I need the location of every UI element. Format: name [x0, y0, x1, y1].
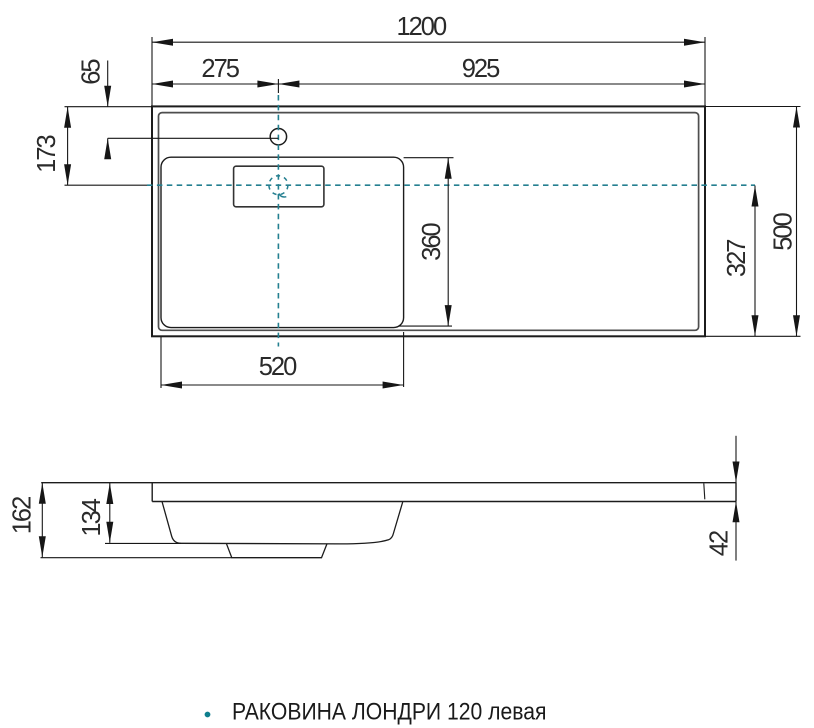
svg-text:520: 520	[259, 353, 297, 381]
svg-text:327: 327	[723, 240, 751, 277]
svg-text:42: 42	[706, 531, 734, 556]
svg-text:360: 360	[418, 223, 446, 261]
svg-text:500: 500	[769, 212, 797, 250]
svg-text:275: 275	[201, 55, 239, 83]
svg-text:1200: 1200	[396, 13, 447, 41]
svg-text:РАКОВИНА ЛОНДРИ 120 левая: РАКОВИНА ЛОНДРИ 120 левая	[232, 698, 547, 725]
svg-text:173: 173	[33, 135, 61, 173]
svg-text:162: 162	[9, 497, 37, 534]
svg-text:65: 65	[77, 59, 105, 85]
svg-text:925: 925	[462, 55, 500, 83]
svg-text:134: 134	[78, 498, 106, 536]
